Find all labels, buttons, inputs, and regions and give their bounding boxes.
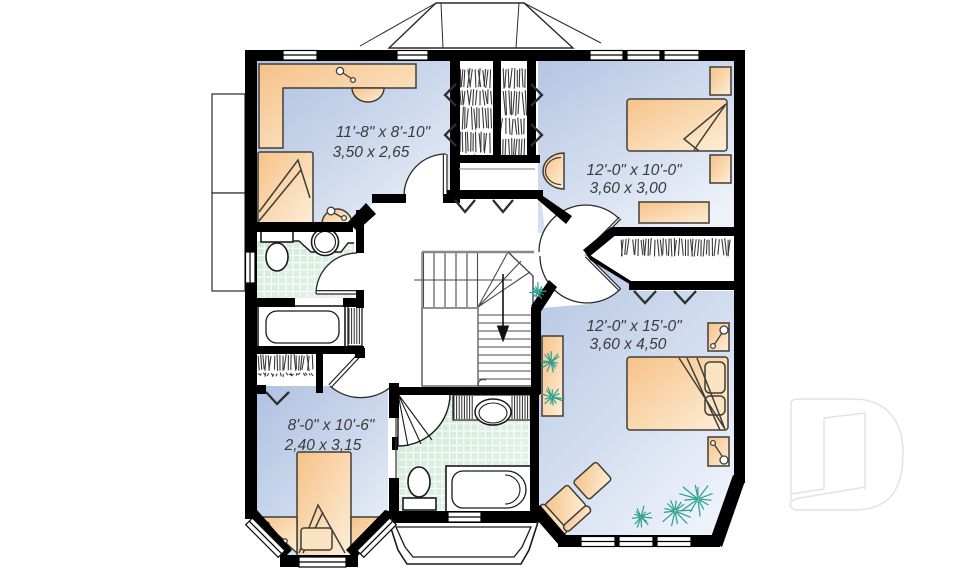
svg-text:3,50 x 2,65: 3,50 x 2,65 [333,144,410,161]
svg-text:3,60 x 3,00: 3,60 x 3,00 [590,180,667,197]
svg-text:8'-0" x 10'-6": 8'-0" x 10'-6" [288,417,376,434]
svg-text:2,40 x 3,15: 2,40 x 3,15 [284,437,362,454]
svg-text:11'-8" x 8'-10": 11'-8" x 8'-10" [336,124,432,141]
svg-text:3,60 x 4,50: 3,60 x 4,50 [590,336,667,353]
svg-text:12'-0" x 10'-0": 12'-0" x 10'-0" [586,162,683,179]
svg-text:12'-0" x 15'-0": 12'-0" x 15'-0" [586,318,683,335]
